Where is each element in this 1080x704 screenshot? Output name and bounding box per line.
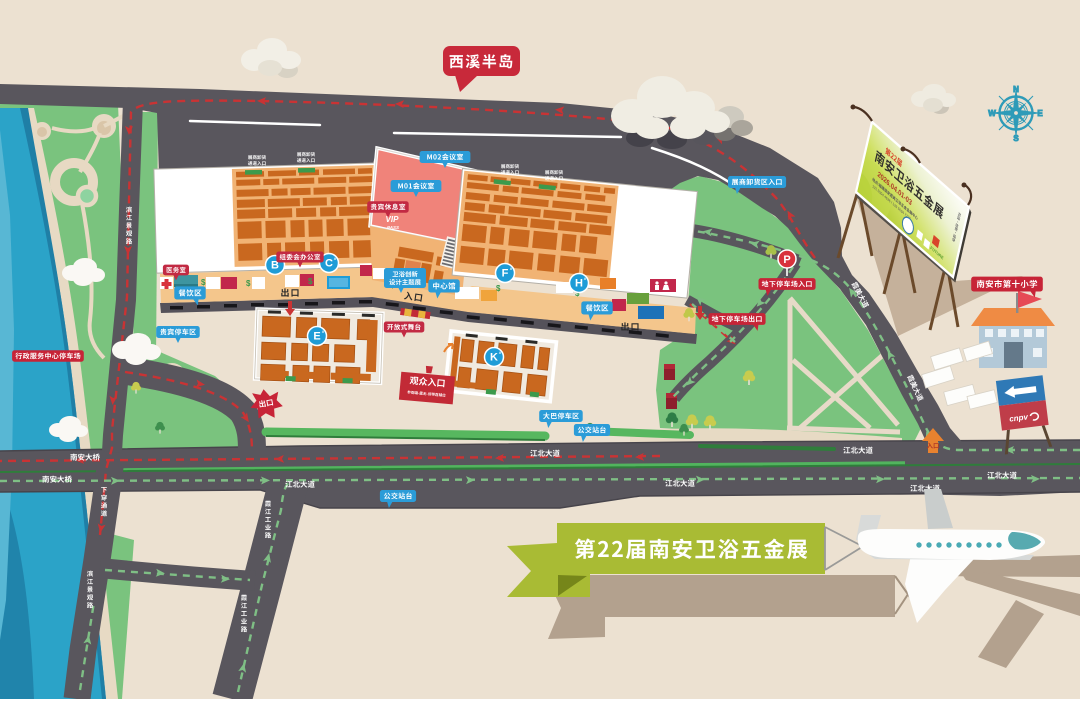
svg-text:N: N bbox=[1013, 85, 1019, 94]
svg-text:F: F bbox=[502, 268, 509, 280]
svg-text:$: $ bbox=[246, 279, 251, 288]
svg-text:VIP: VIP bbox=[386, 215, 400, 224]
svg-text:K: K bbox=[490, 352, 498, 364]
svg-text:$: $ bbox=[201, 278, 206, 287]
svg-text:P: P bbox=[783, 254, 790, 266]
svg-text:PASS: PASS bbox=[387, 225, 399, 230]
svg-text:S: S bbox=[1013, 134, 1019, 143]
svg-text:H: H bbox=[575, 278, 583, 290]
svg-text:W: W bbox=[988, 109, 996, 118]
svg-text:C: C bbox=[325, 258, 333, 270]
svg-text:E: E bbox=[1037, 109, 1043, 118]
svg-text:$: $ bbox=[308, 277, 313, 286]
svg-text:E: E bbox=[313, 331, 320, 343]
svg-text:$: $ bbox=[496, 284, 501, 293]
